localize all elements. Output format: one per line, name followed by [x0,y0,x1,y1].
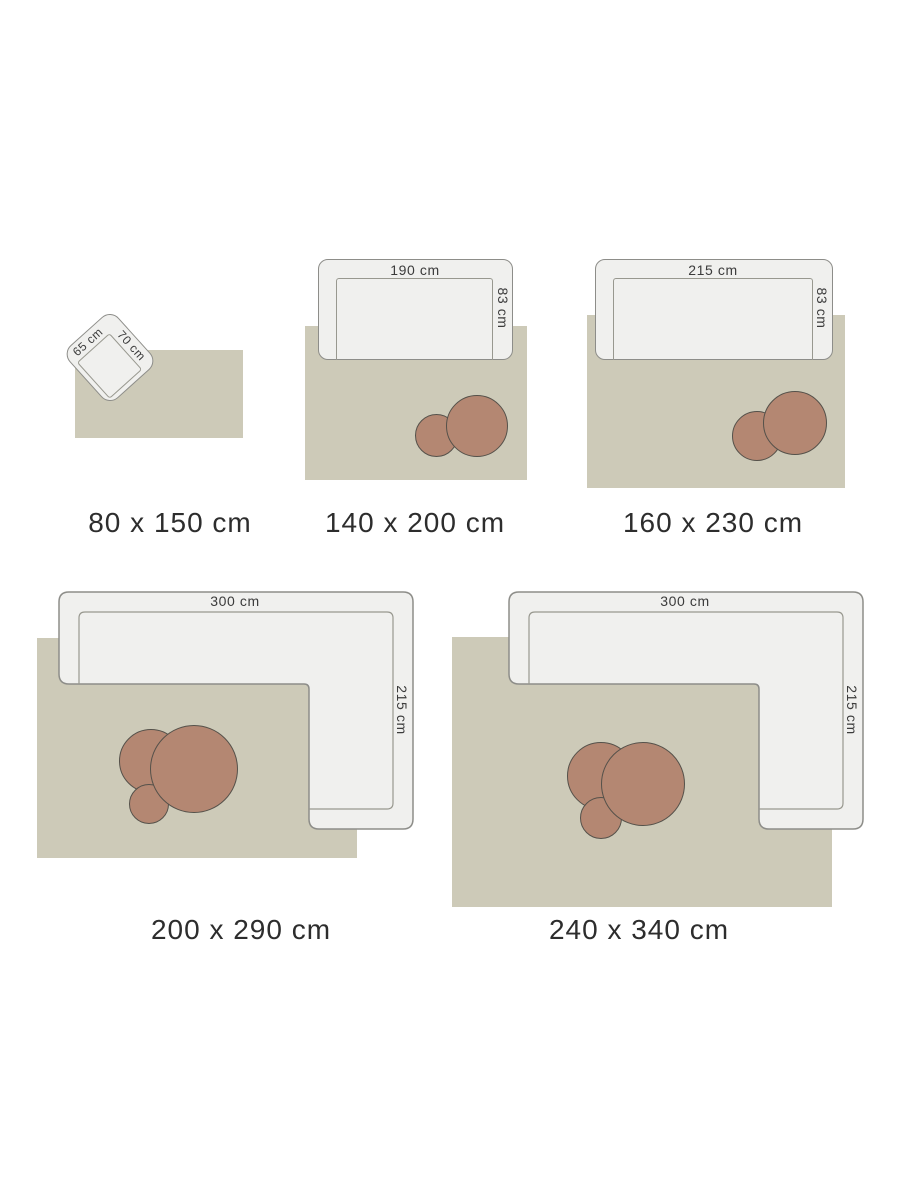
sofa-depth-label: 83 cm [495,287,511,328]
sofa-width-label: 300 cm [660,593,710,609]
round-table-large [601,742,685,826]
size-caption-140x200: 140 x 200 cm [325,507,505,539]
sofa-width-label: 300 cm [210,593,260,609]
size-caption-80x150: 80 x 150 cm [88,507,252,539]
size-caption-200x290: 200 x 290 cm [151,914,331,946]
sofa-depth-label: 83 cm [814,287,830,328]
corner-sofa [58,591,414,830]
size-caption-160x230: 160 x 230 cm [623,507,803,539]
sofa-depth-label: 215 cm [844,685,860,735]
round-table-large [763,391,827,455]
corner-sofa-body [59,592,413,829]
round-table-large [446,395,508,457]
size-caption-240x340: 240 x 340 cm [549,914,729,946]
corner-sofa-body [509,592,863,829]
sofa-depth-label: 215 cm [394,685,410,735]
rug-size-guide: 65 cm 70 cm 80 x 150 cm 190 cm 83 cm 140… [0,0,900,1200]
sofa-seat [336,278,493,360]
corner-sofa [508,591,864,830]
sofa-seat [613,278,813,360]
round-table-large [150,725,238,813]
sofa-width-label: 190 cm [390,262,440,278]
sofa-width-label: 215 cm [688,262,738,278]
